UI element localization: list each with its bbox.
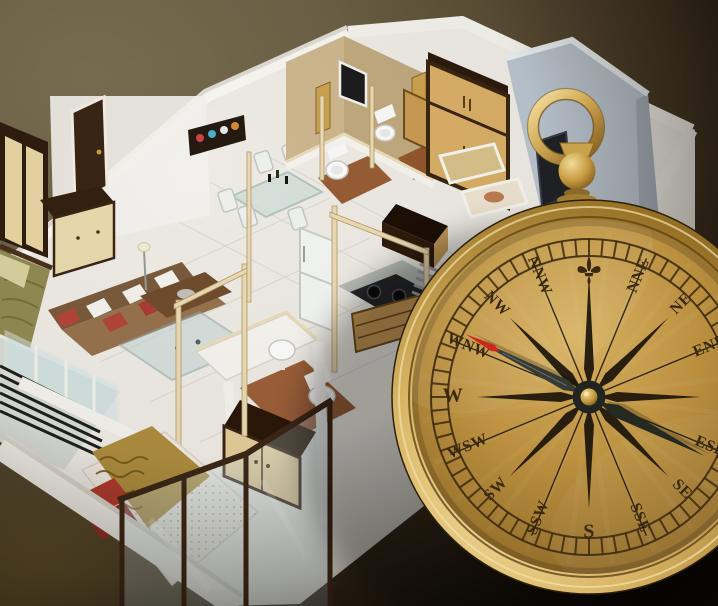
photo-floorplan-with-compass: 3D isometric apartment floor-plan model … [0,0,718,606]
crown-knob [559,153,596,190]
compass-direction-label: W [443,385,464,407]
compass-hub [573,381,606,414]
scene-canvas: NNENEENEEESESESSESSSWSWWSWWWNWNWNNW [0,0,718,606]
compass-direction-label: S [583,521,595,543]
